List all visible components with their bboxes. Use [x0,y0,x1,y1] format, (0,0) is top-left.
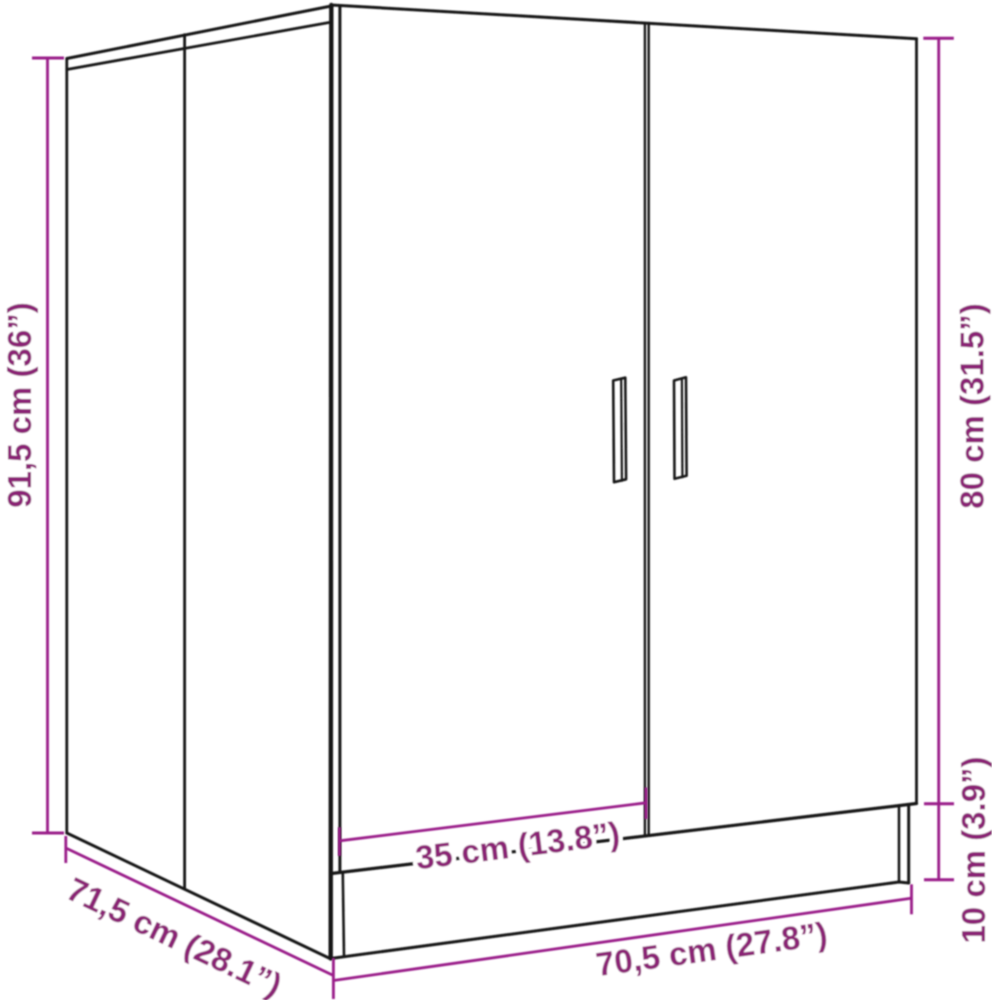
svg-text:91,5 cm (36”): 91,5 cm (36”) [1,302,38,507]
svg-text:10 cm (3.9”): 10 cm (3.9”) [955,756,992,943]
svg-text:80 cm (31.5”): 80 cm (31.5”) [954,303,991,508]
